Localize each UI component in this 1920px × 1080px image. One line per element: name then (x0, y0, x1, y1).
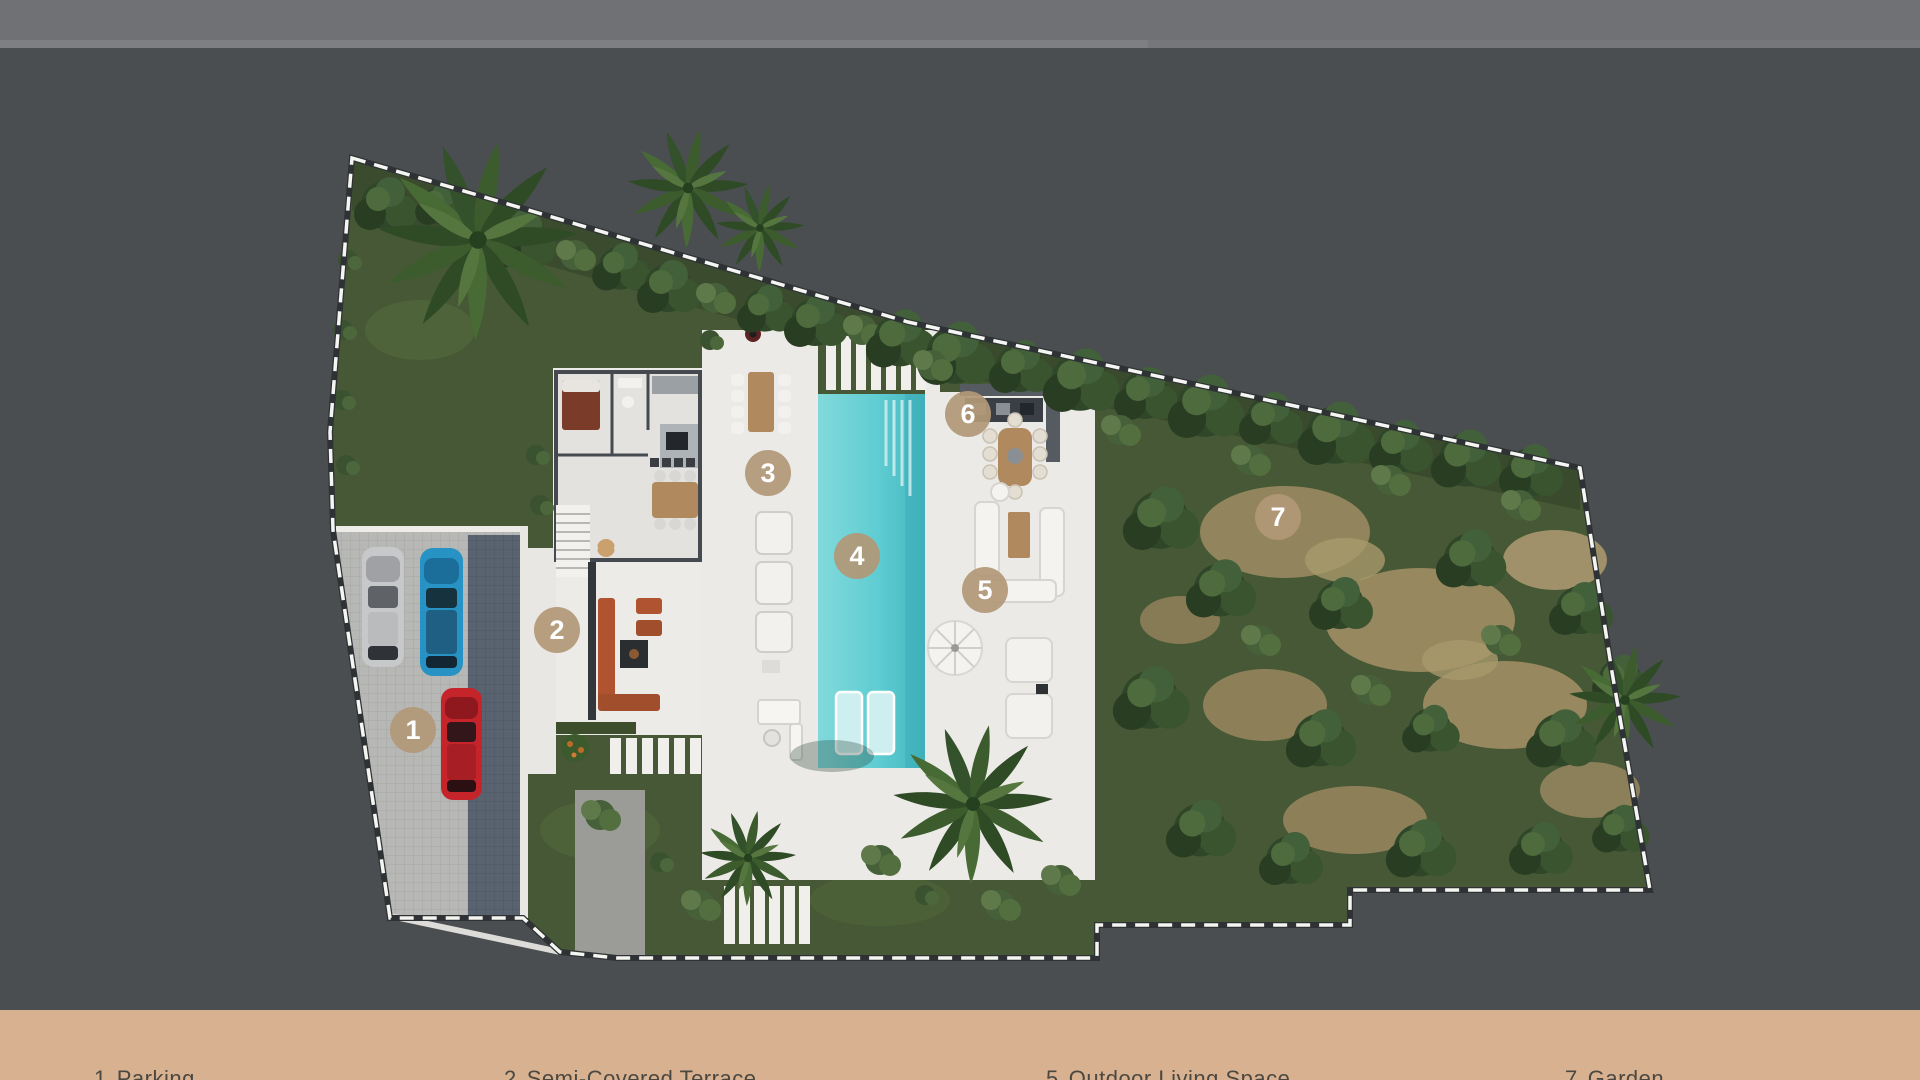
site-plan-render: 1 2 3 4 5 6 7 (0, 48, 1920, 1010)
marker-1: 1 (390, 707, 436, 753)
legend-label: Outdoor Living Space (1069, 1066, 1291, 1080)
top-bar-edge (0, 40, 1148, 48)
page: 1 2 3 4 5 6 7 (0, 0, 1920, 1080)
legend-item-parking: 1Parking (94, 1066, 195, 1080)
sun-loungers (756, 512, 792, 673)
svg-text:1: 1 (405, 715, 420, 745)
legend-item-outdoor-living-space: 5Outdoor Living Space (1046, 1066, 1290, 1080)
svg-text:2: 2 (549, 615, 564, 645)
svg-text:6: 6 (960, 399, 975, 429)
legend-number: 2 (504, 1066, 517, 1080)
top-bar-edge-right (1148, 40, 1920, 48)
svg-text:5: 5 (977, 575, 992, 605)
legend-item-semi-covered-terrace: 2Semi-Covered Terrace (504, 1066, 756, 1080)
parasol (928, 621, 982, 675)
legend-number: 7 (1565, 1066, 1578, 1080)
silver-car (362, 547, 404, 667)
legend-label: Semi-Covered Terrace (527, 1066, 757, 1080)
kitchen-counter (652, 376, 698, 394)
marker-5: 5 (962, 567, 1008, 613)
svg-text:3: 3 (760, 458, 775, 488)
red-car (441, 688, 482, 800)
blue-car (420, 548, 463, 676)
svg-text:7: 7 (1270, 502, 1285, 532)
top-bar (0, 0, 1920, 48)
legend-label: Garden (1588, 1066, 1664, 1080)
legend-label: Parking (117, 1066, 195, 1080)
legend-number: 1 (94, 1066, 107, 1080)
plan-canvas: 1 2 3 4 5 6 7 (0, 48, 1920, 1010)
legend-number: 5 (1046, 1066, 1059, 1080)
marker-3: 3 (745, 450, 791, 496)
legend-bar: 1Parking 2Semi-Covered Terrace 5Outdoor … (0, 1010, 1920, 1080)
marker-2: 2 (534, 607, 580, 653)
stairs (556, 505, 590, 577)
marker-6: 6 (945, 391, 991, 437)
legend-item-garden: 7Garden (1565, 1066, 1664, 1080)
indoor-dining (652, 470, 698, 530)
marker-4: 4 (834, 533, 880, 579)
marker-7: 7 (1255, 494, 1301, 540)
svg-text:4: 4 (849, 541, 864, 571)
